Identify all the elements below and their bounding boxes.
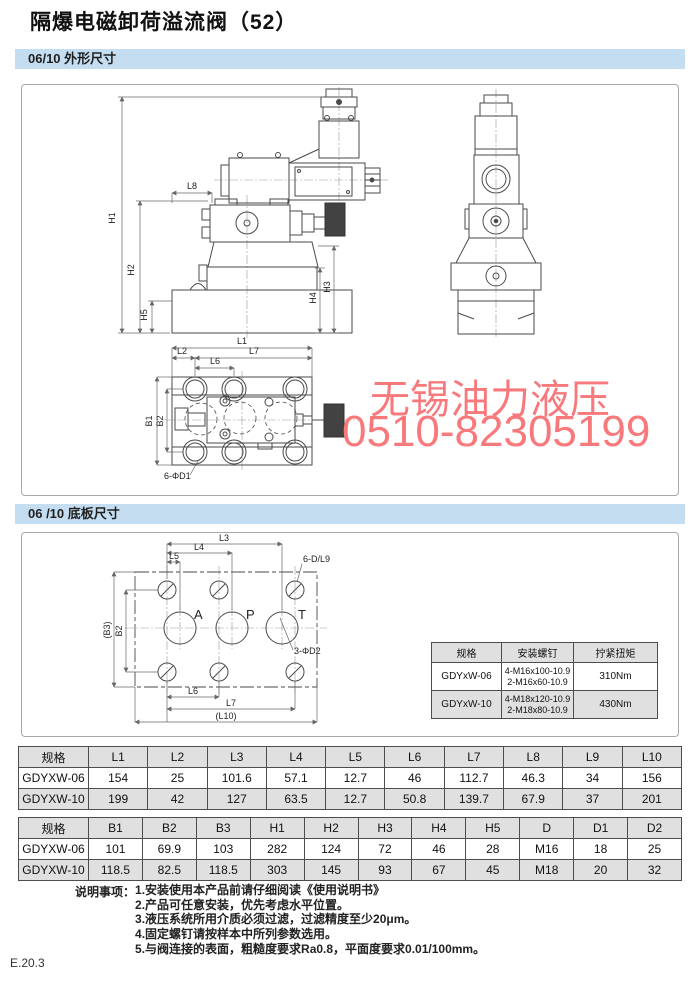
dim-label-h5: H5 xyxy=(139,309,149,321)
note-item: 5.与阀连接的表面，粗糙度要求Ra0.8，平面度要求0.01/100mm。 xyxy=(135,942,485,957)
dim-label-l8: L8 xyxy=(187,181,197,191)
dim-label-l3: L3 xyxy=(219,533,229,543)
dim-label-b2: B2 xyxy=(155,415,165,426)
dim-label-b2: B2 xyxy=(114,625,124,636)
screw-col-torque: 拧紧扭矩 xyxy=(574,643,658,663)
side-view xyxy=(172,89,380,333)
dimension-table-l: 规格 L1 L2 L3 L4 L5 L6 L7 L8 L9 L10 GDYXW-… xyxy=(18,746,682,810)
dim-label-3-d2: 3-ΦD2 xyxy=(294,646,321,656)
table-row: GDYXW-06 154 25 101.6 57.1 12.7 46 112.7… xyxy=(19,768,682,789)
dimension-table-b: 规格 B1 B2 B3 H1 H2 H3 H4 H5 D D1 D2 GDYXW… xyxy=(18,817,682,881)
port-label-p: P xyxy=(246,607,255,622)
section-header-outline: 06/10 外形尺寸 xyxy=(15,49,685,69)
table-row: GDYXW-06 101 69.9 103 282 124 72 46 28 M… xyxy=(19,839,682,860)
table-row: GDYXW-10 118.5 82.5 118.5 303 145 93 67 … xyxy=(19,860,682,881)
page-number: E.20.3 xyxy=(10,956,45,970)
catalog-page: 隔爆电磁卸荷溢流阀（52） 06/10 外形尺寸 xyxy=(0,0,700,982)
table-header-row: 规格 B1 B2 B3 H1 H2 H3 H4 H5 D D1 D2 xyxy=(19,818,682,839)
dim-label-h4: H4 xyxy=(308,292,318,304)
notes-block: 说明事项： 1.安装使用本产品前请仔细阅读《使用说明书》 2.产品可任意安装，优… xyxy=(75,883,485,957)
dim-label-l5: L5 xyxy=(169,551,179,561)
top-view xyxy=(172,377,344,465)
dim-label-6-d1: 6-ΦD1 xyxy=(164,471,191,481)
dim-label-l2: L2 xyxy=(177,346,187,356)
dim-label-h3: H3 xyxy=(322,281,332,293)
mounting-screw-table: 规格 安装螺钉 拧紧扭矩 GDYxW-06 4-M16x100-10.9 2-M… xyxy=(431,642,658,719)
note-item: 4.固定螺钉请按样本中所列参数选用。 xyxy=(135,927,485,942)
dim-label-6-dl9: 6-D/L9 xyxy=(303,554,330,564)
port-label-a: A xyxy=(194,607,203,622)
note-item: 2.产品可任意安装，优先考虑水平位置。 xyxy=(135,898,485,913)
note-item: 3.液压系统所用介质必须过滤，过滤精度至少20μm。 xyxy=(135,912,485,927)
section-header-baseplate: 06 /10 底板尺寸 xyxy=(15,504,685,524)
dim-label-l10: (L10) xyxy=(215,711,236,721)
outline-drawing: H1 H2 H5 L8 H4 H3 xyxy=(22,85,678,495)
dim-label-l6: L6 xyxy=(210,356,220,366)
screw-table-row: GDYxW-10 4-M18x120-10.9 2-M18x80-10.9 43… xyxy=(432,691,658,719)
dim-label-b1: B1 xyxy=(144,415,154,426)
table-row: GDYXW-10 199 42 127 63.5 12.7 50.8 139.7… xyxy=(19,789,682,810)
dim-label-l6: L6 xyxy=(188,686,198,696)
side-view-dimensions: H1 H2 H5 L8 H4 H3 xyxy=(107,97,339,333)
screw-table-row: GDYxW-06 4-M16x100-10.9 2-M16x60-10.9 31… xyxy=(432,663,658,691)
plate-view xyxy=(135,572,317,687)
screw-table-header-row: 规格 安装螺钉 拧紧扭矩 xyxy=(432,643,658,663)
table-header-row: 规格 L1 L2 L3 L4 L5 L6 L7 L8 L9 L10 xyxy=(19,747,682,768)
dim-label-l7: L7 xyxy=(226,698,236,708)
dim-label-l7: L7 xyxy=(249,346,259,356)
port-label-t: T xyxy=(298,607,306,622)
baseplate-drawing-box: L3 L4 L5 6-D/L9 3-ΦD2 L6 L7 (L10) (B3) B… xyxy=(21,532,679,737)
dim-label-h2: H2 xyxy=(126,264,136,276)
dim-label-l4: L4 xyxy=(194,542,204,552)
dim-label-b3: (B3) xyxy=(102,621,112,638)
screw-col-spec: 规格 xyxy=(432,643,502,663)
outline-drawing-box: H1 H2 H5 L8 H4 H3 xyxy=(21,84,679,496)
notes-label: 说明事项： xyxy=(75,883,135,957)
screw-col-screws: 安装螺钉 xyxy=(502,643,574,663)
dim-label-h1: H1 xyxy=(107,212,117,224)
dim-label-l1: L1 xyxy=(237,336,247,346)
note-item: 1.安装使用本产品前请仔细阅读《使用说明书》 xyxy=(135,883,485,898)
page-title: 隔爆电磁卸荷溢流阀（52） xyxy=(30,6,297,36)
notes-list: 1.安装使用本产品前请仔细阅读《使用说明书》 2.产品可任意安装，优先考虑水平位… xyxy=(135,883,485,957)
